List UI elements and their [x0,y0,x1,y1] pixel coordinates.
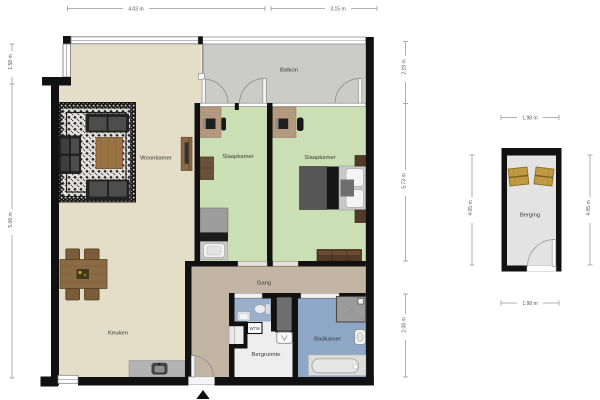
svg-text:1.58 m: 1.58 m [8,54,14,69]
svg-text:Gang: Gang [257,281,271,287]
svg-text:Slaapkamer: Slaapkamer [304,155,335,161]
svg-text:1.98 m: 1.98 m [522,116,537,122]
svg-text:5.73 m: 5.73 m [402,173,408,188]
svg-text:Woonkamer: Woonkamer [140,156,172,162]
svg-text:1.98 m: 1.98 m [522,301,537,307]
svg-text:2.08 m: 2.08 m [402,317,408,332]
svg-text:4.03 m: 4.03 m [128,7,143,13]
svg-text:Balkon: Balkon [280,68,298,74]
svg-text:5.08 m: 5.08 m [8,212,14,227]
svg-text:4.05 m: 4.05 m [468,200,474,215]
svg-text:4.05 m: 4.05 m [586,200,592,215]
svg-text:WTW: WTW [249,326,260,331]
svg-text:Badkamer: Badkamer [314,336,341,342]
svg-text:Keuken: Keuken [108,331,128,337]
svg-text:3.15 m: 3.15 m [330,7,345,13]
svg-text:Slaapkamer: Slaapkamer [222,154,253,160]
svg-text:Bergruimte: Bergruimte [252,352,282,358]
svg-text:2.19 m: 2.19 m [402,59,408,74]
svg-text:Berging: Berging [520,213,540,219]
